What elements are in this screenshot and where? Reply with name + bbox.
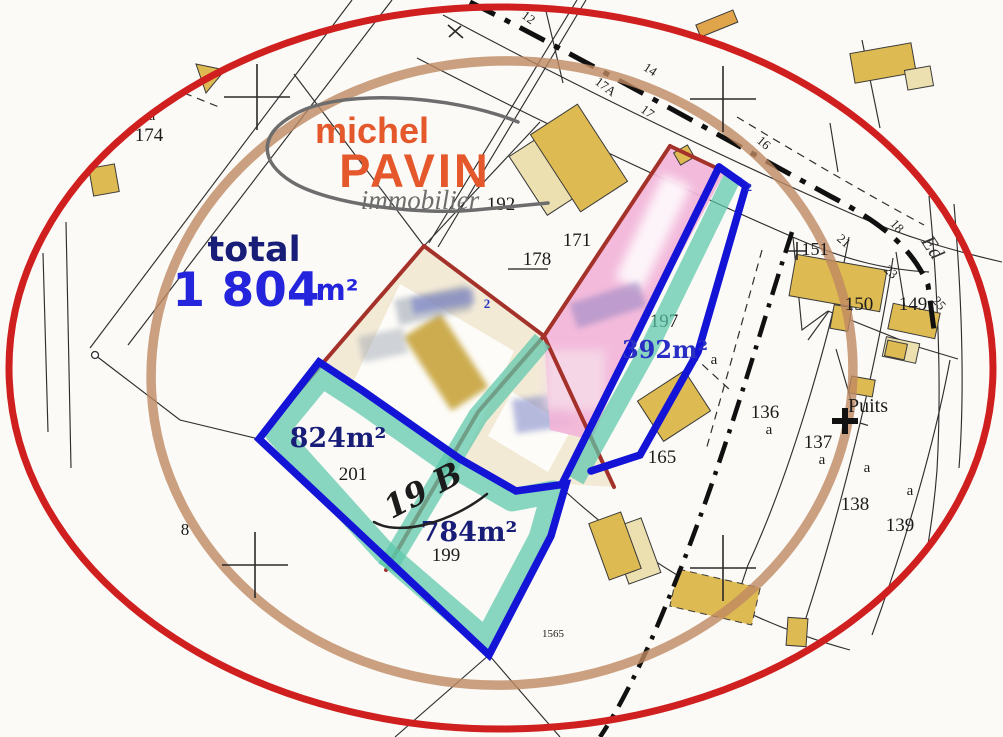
sub-letter: a xyxy=(819,452,826,468)
sub-letter: a xyxy=(907,483,914,499)
parcel-label-149: 149 xyxy=(899,294,928,315)
total-value: 1 804 xyxy=(172,263,319,318)
parcel-label-138: 138 xyxy=(841,494,870,515)
sub-letter: a xyxy=(864,460,871,476)
total-unit: m² xyxy=(316,273,359,307)
point-marker-2: 2 xyxy=(746,180,752,194)
parcel-label-201: 201 xyxy=(339,464,368,485)
logo-tagline: immobilier xyxy=(361,185,480,215)
parcel-label-174: 174 xyxy=(135,125,164,146)
parcel-label-178: 178 xyxy=(523,249,552,270)
parcel-label-199: 199 xyxy=(432,545,461,566)
parcel-label-151: 151 xyxy=(802,239,829,259)
sub-letter: a xyxy=(766,422,773,438)
well-label: Puits xyxy=(848,395,888,417)
parcel-label-136: 136 xyxy=(751,402,780,423)
parcel-label-137: 137 xyxy=(804,432,833,453)
parcel-label-8: 8 xyxy=(181,520,190,539)
parcel-label-1565: 1565 xyxy=(542,628,565,640)
point-marker-2: 2 xyxy=(484,296,491,311)
area-824: 824m² xyxy=(290,423,387,454)
parcel-label-192: 192 xyxy=(487,194,516,215)
building xyxy=(786,617,808,646)
building xyxy=(904,66,933,90)
sub-letter: a xyxy=(711,352,718,368)
parcel-label-171: 171 xyxy=(563,230,592,251)
boundary-point-icon xyxy=(92,352,99,359)
building xyxy=(885,340,908,360)
parcel-label-150: 150 xyxy=(845,294,874,315)
cadastral-map: 197 xyxy=(0,0,1003,737)
area-392: 392m² xyxy=(622,335,708,364)
parcel-label-139: 139 xyxy=(886,515,915,536)
parcel-label-165: 165 xyxy=(648,447,677,468)
